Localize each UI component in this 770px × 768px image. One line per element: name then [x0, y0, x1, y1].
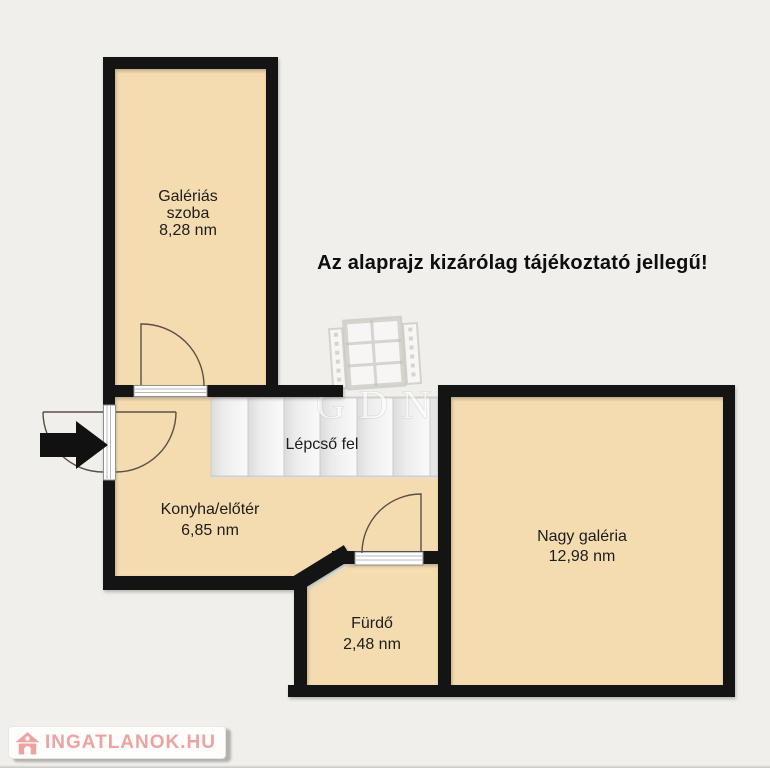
label-konyha-eloter: Konyha/előtér 6,85 nm [130, 499, 290, 541]
room-area: 2,48 nm [312, 634, 432, 655]
door-frame-entrance [104, 405, 116, 480]
watermark: GDN [316, 317, 445, 427]
entrance-arrow-icon [40, 421, 108, 469]
room-name: Fürdő [312, 613, 432, 634]
label-stairs: Lépcső fel [262, 434, 382, 455]
watermark-window-icon [329, 317, 421, 389]
door-frame-galerias [134, 386, 207, 397]
room-area: 6,85 nm [130, 520, 290, 541]
room-name: Konyha/előtér [130, 499, 290, 520]
stairs-label: Lépcső fel [262, 434, 382, 455]
floorplan-canvas: GDN [0, 0, 770, 768]
room-area: 12,98 nm [502, 547, 662, 567]
room-area: 8,28 nm [113, 222, 263, 239]
label-furdo: Fürdő 2,48 nm [312, 613, 432, 655]
disclaimer-text: Az alaprajz kizárólag tájékoztató jelleg… [280, 252, 745, 275]
room-name: Galériás [113, 188, 263, 205]
room-name: Nagy galéria [502, 527, 662, 547]
room-name: szoba [113, 205, 263, 222]
site-logo: INGATLANOK.HU [8, 726, 226, 759]
site-logo-text: INGATLANOK.HU [45, 732, 216, 754]
label-galerias-szoba: Galériás szoba 8,28 nm [113, 188, 263, 239]
door-frame-furdo [355, 552, 423, 565]
house-icon [15, 730, 40, 755]
label-nagy-galeria: Nagy galéria 12,98 nm [502, 527, 662, 567]
